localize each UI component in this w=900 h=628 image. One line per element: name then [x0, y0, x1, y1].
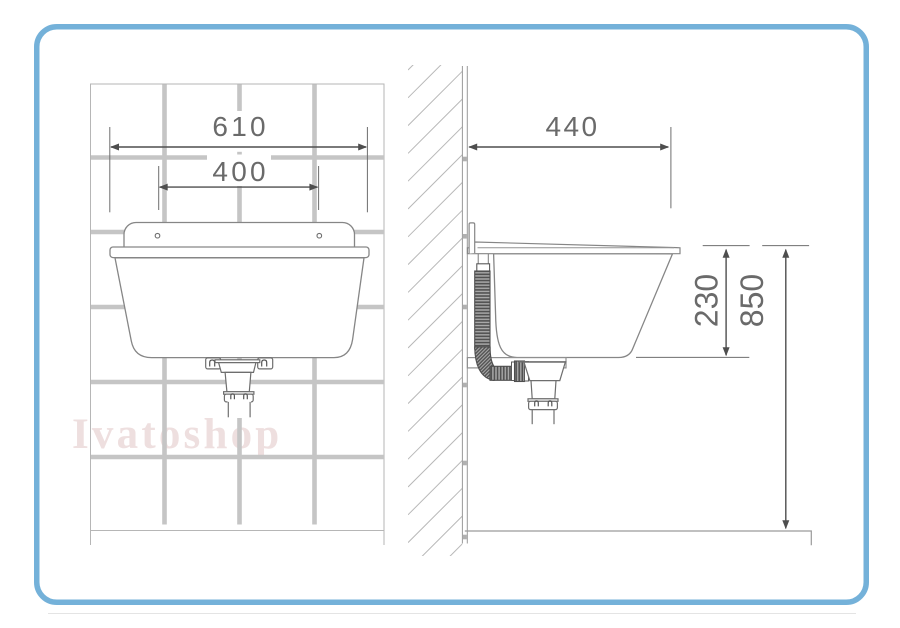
svg-text:850: 850 [734, 274, 770, 327]
svg-text:Ivatoshop: Ivatoshop [72, 411, 282, 458]
svg-text:610: 610 [212, 111, 268, 142]
svg-text:230: 230 [689, 274, 725, 327]
svg-text:400: 400 [212, 156, 268, 187]
svg-text:440: 440 [546, 111, 600, 142]
